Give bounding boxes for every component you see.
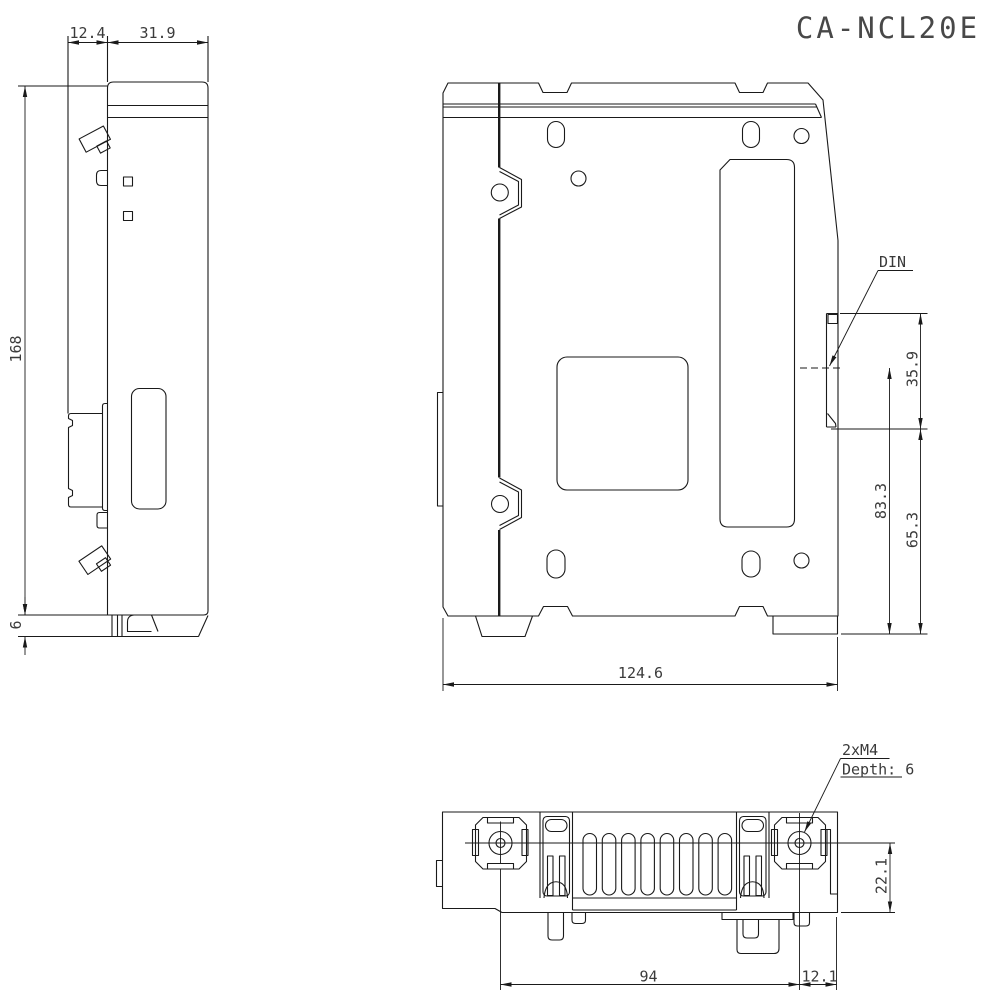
dim-screw-to-rear: 22.1: [873, 858, 891, 894]
dim-clip-width: 12.4: [69, 24, 105, 42]
round-hole: [794, 553, 809, 568]
rear-view-dimensions: DIN 35.9 83.3 65.3 124.6: [443, 253, 928, 691]
square-window: [124, 177, 133, 186]
mounting-pegs: [548, 913, 810, 954]
rear-view: [438, 83, 844, 637]
side-body-outline: [108, 82, 209, 615]
side-bump: [97, 171, 108, 186]
side-view: [18, 36, 208, 637]
technical-drawing: 12.4 31.9 168 6: [0, 0, 998, 1000]
side-slot: [132, 389, 167, 510]
bottom-view: [437, 812, 896, 990]
central-opening: [557, 357, 688, 490]
din-label: DIN: [879, 253, 906, 271]
bent-tab: [500, 168, 522, 219]
drawing-page: 12.4 31.9 168 6: [0, 0, 998, 1000]
slot-hole: [742, 551, 760, 577]
top-cap-band: [108, 106, 209, 118]
tall-slot: [720, 160, 795, 528]
tab-hole: [491, 184, 508, 201]
upper-latch: [79, 126, 110, 152]
dim-foot-height: 6: [7, 620, 25, 629]
din-clip-profile: [69, 414, 103, 508]
drawing-title: CA-NCL20E: [796, 11, 980, 45]
connector-block: [540, 812, 573, 898]
slot-hole: [548, 122, 565, 148]
tab-hole: [492, 496, 509, 513]
dim-rail-height: 35.9: [904, 351, 922, 387]
screw-note: 2xM4: [842, 741, 878, 759]
dim-body-width: 31.9: [139, 24, 175, 42]
lower-latch: [79, 546, 111, 575]
side-foot: [112, 615, 208, 637]
connector-block: [737, 812, 770, 898]
round-hole: [571, 171, 586, 186]
bottom-outline: [443, 812, 838, 913]
square-window: [124, 212, 133, 221]
slot-hole: [547, 550, 565, 578]
dim-rail-bottom: 65.3: [904, 512, 922, 548]
din-rail-section: [827, 314, 839, 428]
din-rail-hook: [828, 315, 838, 324]
dim-height: 168: [7, 335, 25, 362]
screw-depth-note: Depth: 6: [842, 761, 914, 779]
bent-tab: [500, 478, 522, 530]
rear-outline: [443, 83, 838, 616]
round-hole: [794, 129, 809, 144]
slot-hole: [743, 122, 760, 148]
rear-feet: [476, 616, 838, 637]
bottom-view-dimensions: 2xM4 Depth: 6 22.1 94 12.1: [501, 741, 915, 986]
dim-width: 124.6: [618, 664, 663, 682]
dim-screw-pitch: 94: [639, 968, 657, 986]
dim-center-to-bottom: 83.3: [872, 483, 890, 519]
extension-lines: [68, 36, 208, 86]
dim-screw-to-edge: 12.1: [801, 968, 837, 986]
